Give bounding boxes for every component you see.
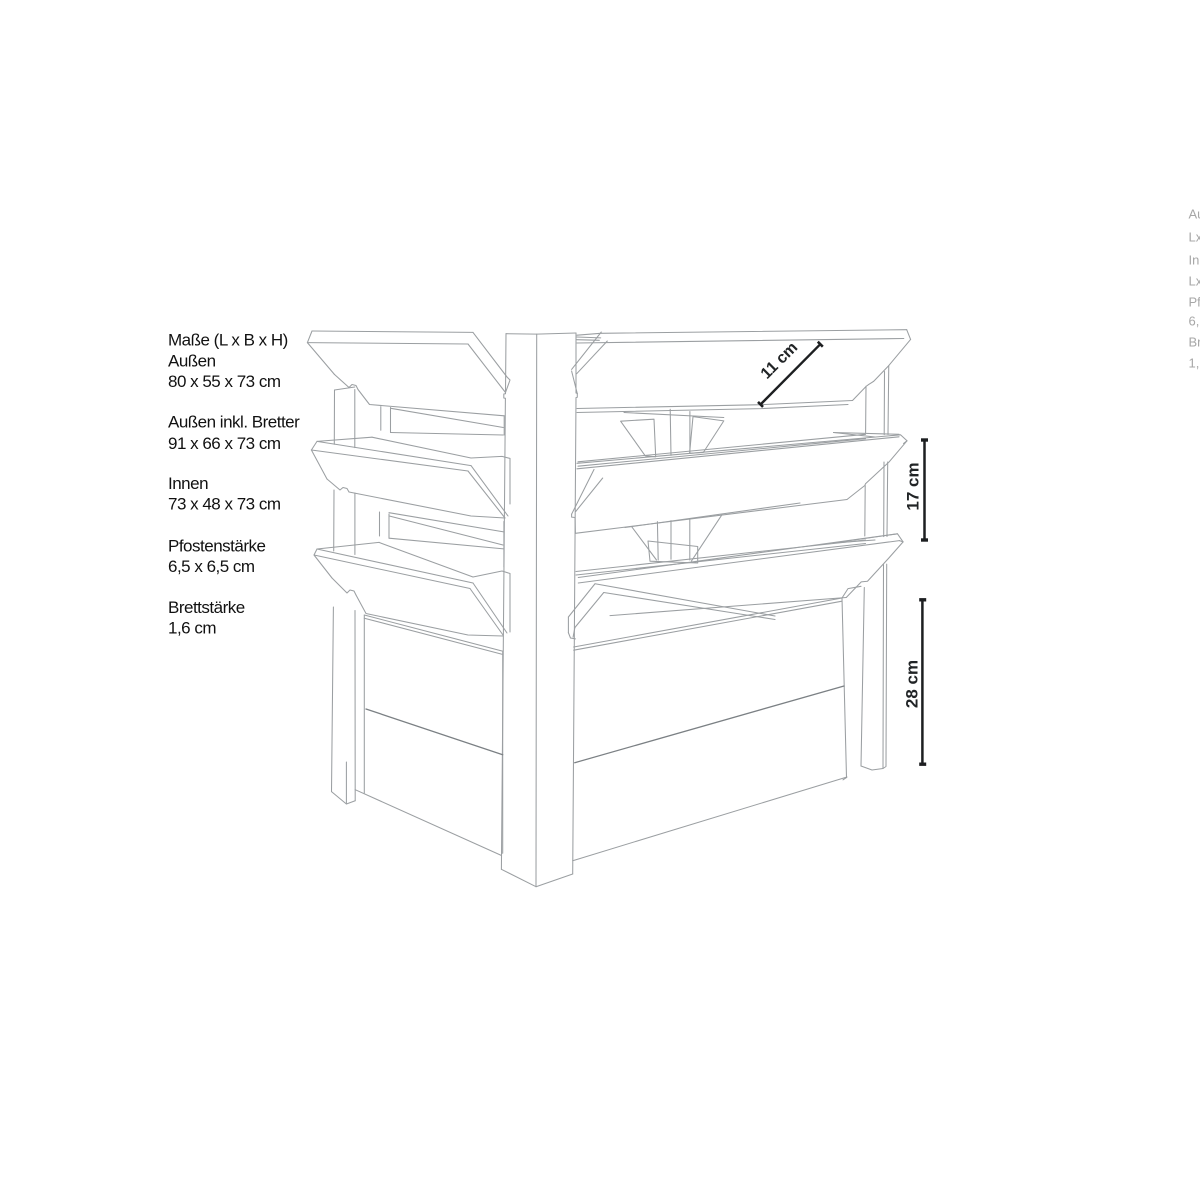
- svg-text:17 cm: 17 cm: [904, 462, 923, 510]
- svg-text:1,6 cm: 1,6 cm: [1189, 355, 1200, 370]
- svg-text:80 x 55 x 73 cm: 80 x 55 x 73 cm: [168, 372, 281, 391]
- svg-text:Pfostenstärke: Pfostenstärke: [1189, 294, 1200, 309]
- svg-text:1,6 cm: 1,6 cm: [168, 619, 216, 638]
- svg-text:Brettstärke: Brettstärke: [168, 598, 245, 617]
- svg-text:Außen inkl. Bretter: Außen inkl. Bretter: [168, 413, 300, 432]
- svg-text:Innen: Innen: [1189, 252, 1200, 267]
- svg-text:11 cm: 11 cm: [758, 339, 801, 382]
- svg-text:91 x 66 x 73 cm: 91 x 66 x 73 cm: [168, 434, 281, 453]
- svg-text:LxBxH: 80 x 55: LxBxH: 80 x 55: [1189, 229, 1200, 244]
- svg-text:Innen: Innen: [168, 474, 208, 493]
- svg-text:28 cm: 28 cm: [902, 660, 921, 708]
- svg-text:Pfostenstärke: Pfostenstärke: [168, 537, 265, 556]
- svg-text:Außen: Außen: [1189, 206, 1200, 221]
- svg-text:6,5 x 6,5 cm: 6,5 x 6,5 cm: [1189, 313, 1200, 328]
- svg-text:Brettstärke: Brettstärke: [1189, 334, 1200, 349]
- svg-text:Außen: Außen: [168, 352, 216, 371]
- svg-text:73 x 48 x 73 cm: 73 x 48 x 73 cm: [168, 495, 281, 514]
- svg-text:Maße (L x B x H): Maße (L x B x H): [168, 331, 288, 350]
- svg-text:LxBxH: 73 x 48: LxBxH: 73 x 48: [1189, 273, 1200, 288]
- svg-text:6,5 x 6,5 cm: 6,5 x 6,5 cm: [168, 557, 255, 576]
